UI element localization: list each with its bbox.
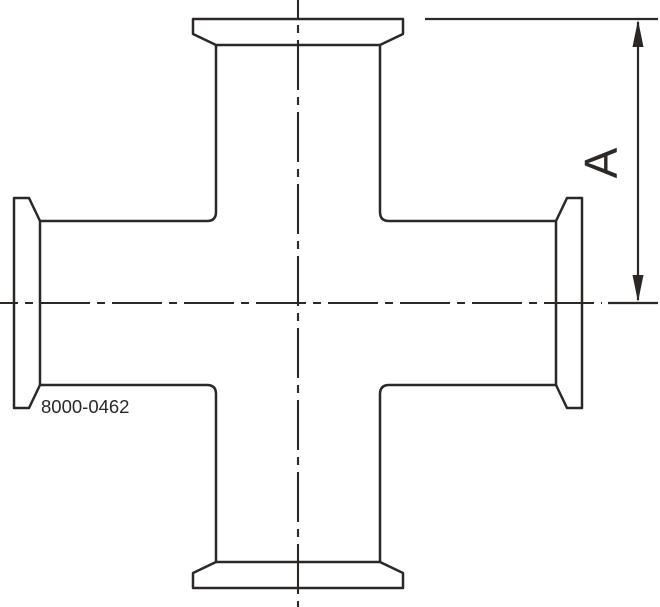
centerlines — [0, 0, 602, 607]
dimension-label-a: A — [575, 147, 627, 178]
technical-drawing-canvas: A 8000-0462 — [0, 0, 660, 607]
dimension-arrow-up-icon — [633, 20, 644, 47]
part-number-label: 8000-0462 — [41, 396, 129, 417]
dimension-arrow-down-icon — [633, 275, 644, 302]
cross-fitting-drawing: A 8000-0462 — [0, 0, 660, 607]
